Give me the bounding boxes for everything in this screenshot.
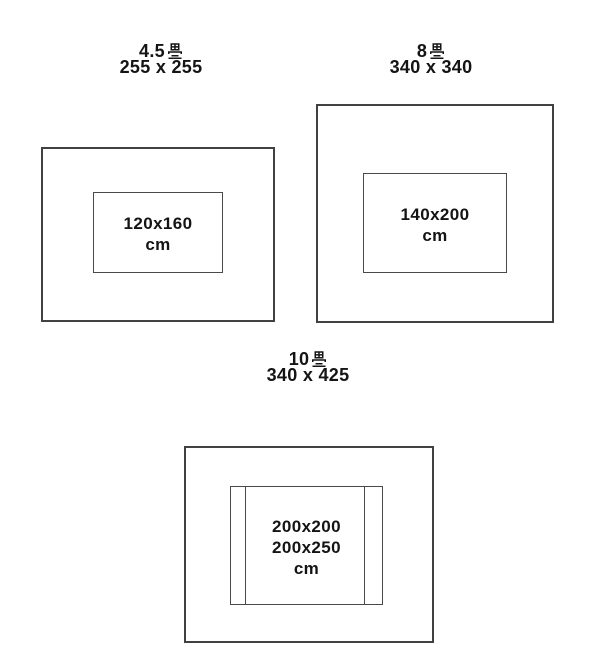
rug-size-guide-diagram: 4.5畳 255 x 255 120x160 cm 8畳 340 x 340 1… xyxy=(0,0,600,650)
room-title-8-tatami: 8畳 340 x 340 xyxy=(331,43,531,75)
rug-outline-140x200: 140x200 cm xyxy=(363,173,507,273)
rug-size-label: 140x200 xyxy=(401,204,470,225)
rug-outline-200x250: 200x200 200x250 cm xyxy=(230,486,383,605)
rug-outline-120x160: 120x160 cm xyxy=(93,192,223,273)
room-dimensions-label: 255 x 255 xyxy=(61,59,261,75)
room-dimensions-label: 340 x 425 xyxy=(208,367,408,383)
rug-size-label: 120x160 xyxy=(124,213,193,234)
rug-200x200-right-boundary-line xyxy=(364,487,365,604)
rug-size-label: 200x200 xyxy=(272,516,341,537)
rug-size-label: 200x250 xyxy=(272,537,341,558)
rug-unit-label: cm xyxy=(145,234,170,255)
rug-unit-label: cm xyxy=(294,558,319,579)
room-title-4-5-tatami: 4.5畳 255 x 255 xyxy=(61,43,261,75)
room-dimensions-label: 340 x 340 xyxy=(331,59,531,75)
rug-unit-label: cm xyxy=(422,225,447,246)
rug-200x200-left-boundary-line xyxy=(245,487,246,604)
room-title-10-tatami: 10畳 340 x 425 xyxy=(208,351,408,383)
